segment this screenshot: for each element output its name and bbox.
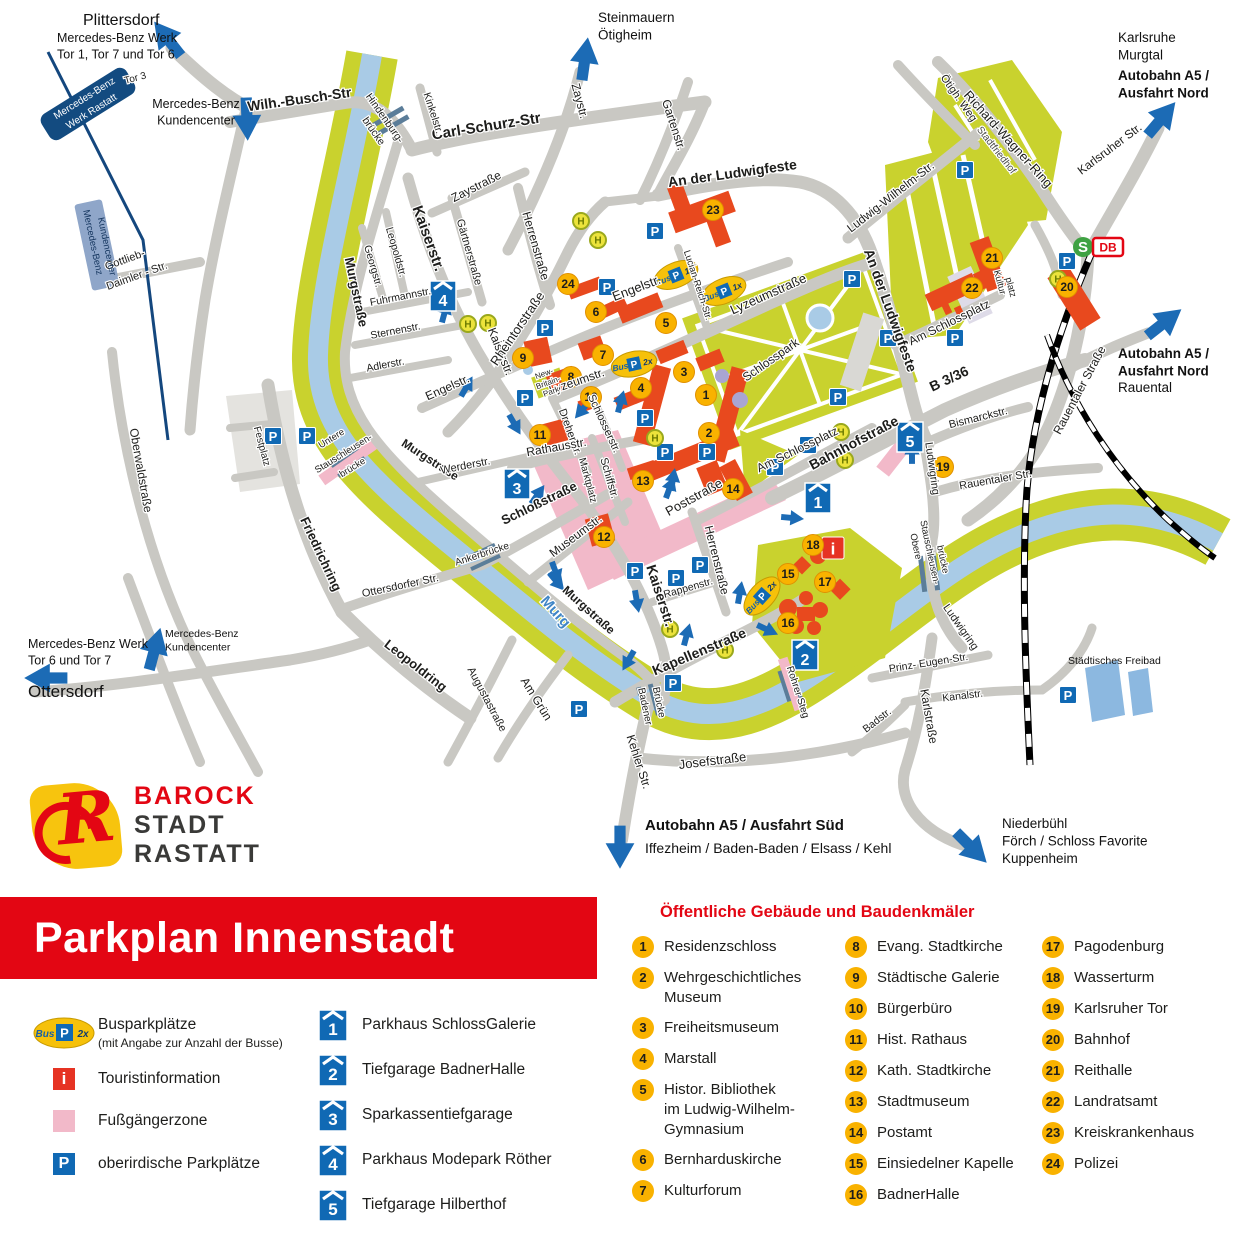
building-label: Bernharduskirche xyxy=(664,1149,782,1171)
parking-icon: P xyxy=(265,428,282,445)
street-label: Leopoldstr. xyxy=(383,226,409,279)
map-number-badge: 24 xyxy=(558,274,579,295)
svg-text:20: 20 xyxy=(1060,280,1074,294)
building-legend-item: 13 Stadtmuseum xyxy=(845,1091,1055,1113)
building-number-badge: 19 xyxy=(1042,998,1064,1020)
parkhaus-label: Parkhaus Modepark Röther xyxy=(362,1151,552,1169)
destination-label: Ottersdorf xyxy=(28,682,104,701)
building-label: Residenzschloss xyxy=(664,936,777,958)
svg-text:P: P xyxy=(848,272,857,287)
garage-icon: 4 xyxy=(318,1143,348,1177)
svg-text:P: P xyxy=(661,445,670,460)
parkhaus-legend-item: 2 Tiefgarage BadnerHalle xyxy=(318,1053,552,1087)
pedestrian-zone-swatch xyxy=(53,1110,75,1132)
parking-icon: P xyxy=(947,330,964,347)
parkhaus-legend-item: 4 Parkhaus Modepark Röther xyxy=(318,1143,552,1177)
destination-label: Plittersdorf xyxy=(83,12,160,29)
building-number-badge: 2 xyxy=(632,967,654,989)
garage-icon: 3 xyxy=(318,1098,348,1132)
map-number-badge: 23 xyxy=(703,200,724,221)
building-number-badge: 17 xyxy=(1042,936,1064,958)
svg-text:21: 21 xyxy=(985,251,999,265)
building-number-badge: 16 xyxy=(845,1184,867,1206)
parking-icon: P xyxy=(517,390,534,407)
svg-text:2: 2 xyxy=(328,1065,337,1084)
building-label: Karlsruher Tor xyxy=(1074,998,1168,1020)
parking-icon: P xyxy=(537,320,554,337)
bus-stop-icon: H xyxy=(590,232,606,248)
svg-text:Bus: Bus xyxy=(36,1029,55,1040)
building-label: Reithalle xyxy=(1074,1060,1132,1082)
svg-text:4: 4 xyxy=(638,381,645,395)
db-icon: DB xyxy=(1093,238,1123,256)
svg-text:P: P xyxy=(834,390,843,405)
building-number-badge: 5 xyxy=(632,1079,654,1101)
svg-text:P: P xyxy=(269,429,278,444)
building-number-badge: 4 xyxy=(632,1048,654,1070)
buildings-column-2: 8 Evang. Stadtkirche9 Städtische Galerie… xyxy=(845,936,1055,1215)
building-number-badge: 20 xyxy=(1042,1029,1064,1051)
svg-text:P: P xyxy=(631,564,640,579)
svg-text:14: 14 xyxy=(726,482,740,496)
building-number-badge: 24 xyxy=(1042,1153,1064,1175)
bus-stop-icon: H xyxy=(647,430,663,446)
parkhaus-label: Tiefgarage BadnerHalle xyxy=(362,1061,525,1079)
street-label: Kaiserstr. xyxy=(409,203,448,273)
building-number-badge: 1 xyxy=(632,936,654,958)
building-legend-item: 20 Bahnhof xyxy=(1042,1029,1240,1051)
building-legend-item: 21 Reithalle xyxy=(1042,1060,1240,1082)
map-number-badge: 15 xyxy=(778,564,799,585)
direction-arrow-icon xyxy=(606,826,635,869)
map-number-badge: 9 xyxy=(513,348,534,369)
map-number-badge: 7 xyxy=(593,345,614,366)
garage-icon: 1 xyxy=(805,483,831,513)
parkhaus-label: Parkhaus SchlossGalerie xyxy=(362,1016,536,1034)
building-legend-item: 22 Landratsamt xyxy=(1042,1091,1240,1113)
building-label: Pagodenburg xyxy=(1074,936,1164,958)
sbahn-icon: S xyxy=(1073,237,1093,257)
building-legend-item: 1 Residenzschloss xyxy=(632,936,842,958)
svg-text:17: 17 xyxy=(818,575,832,589)
legend-tourist-label: Touristinformation xyxy=(98,1070,220,1088)
building-legend-item: 7 Kulturforum xyxy=(632,1180,842,1202)
destination-label: Mercedes-Benz WerkTor 6 und Tor 7 xyxy=(28,637,149,667)
building-label: Bürgerbüro xyxy=(877,998,952,1020)
direction-arrow-icon xyxy=(677,621,698,647)
building-label: Kulturforum xyxy=(664,1180,742,1202)
garage-icon: 5 xyxy=(318,1188,348,1222)
building-label: Landratsamt xyxy=(1074,1091,1157,1113)
svg-text:16: 16 xyxy=(781,616,795,630)
svg-text:P: P xyxy=(541,321,550,336)
map-number-badge: 21 xyxy=(982,248,1003,269)
building-number-badge: 18 xyxy=(1042,967,1064,989)
parkhaus-label: Sparkassentiefgarage xyxy=(362,1106,513,1124)
direction-arrow-icon xyxy=(568,35,603,82)
svg-text:15: 15 xyxy=(781,567,795,581)
parking-icon: P xyxy=(830,389,847,406)
building-number-badge: 3 xyxy=(632,1017,654,1039)
parking-icon: P xyxy=(657,444,674,461)
logo-line1: BAROCK xyxy=(134,782,261,811)
svg-text:S: S xyxy=(1078,239,1088,256)
svg-text:i: i xyxy=(831,540,836,559)
svg-text:P: P xyxy=(651,224,660,239)
svg-text:3: 3 xyxy=(328,1110,337,1129)
destination-label: Mercedes-BenzKundencenter xyxy=(165,628,239,654)
building-label: Bahnhof xyxy=(1074,1029,1130,1051)
parkhaus-legend-item: 3 Sparkassentiefgarage xyxy=(318,1098,552,1132)
building-legend-item: 3 Freiheitsmuseum xyxy=(632,1017,842,1039)
svg-text:P: P xyxy=(60,1026,69,1041)
svg-text:5: 5 xyxy=(328,1200,337,1219)
title-banner: Parkplan Innenstadt xyxy=(0,897,597,979)
building-label: Wasserturm xyxy=(1074,967,1154,989)
logo-mark-icon: R xyxy=(28,779,123,872)
parking-icon: P xyxy=(571,701,588,718)
parkhaus-legend-item: 1 Parkhaus SchlossGalerie xyxy=(318,1008,552,1042)
parking-icon: P xyxy=(52,1152,76,1176)
parking-icon: P xyxy=(627,563,644,580)
street-label: Josefstraße xyxy=(678,749,747,772)
svg-text:9: 9 xyxy=(520,351,527,365)
parking-icon: P xyxy=(637,410,654,427)
svg-text:P: P xyxy=(951,331,960,346)
building-legend-item: 11 Hist. Rathaus xyxy=(845,1029,1055,1051)
building-legend-item: 10 Bürgerbüro xyxy=(845,998,1055,1020)
logo-line2: STADT xyxy=(134,811,261,840)
building-number-badge: 15 xyxy=(845,1153,867,1175)
parking-icon: P xyxy=(957,162,974,179)
destination-label: Autobahn A5 / Ausfahrt Süd xyxy=(645,817,844,834)
building-legend-item: 6 Bernharduskirche xyxy=(632,1149,842,1171)
destination-label: Städtisches Freibad xyxy=(1068,655,1161,667)
building-number-badge: 6 xyxy=(632,1149,654,1171)
destination-label: Mercedes-BenzKundencenter xyxy=(152,97,240,127)
svg-text:24: 24 xyxy=(561,277,575,291)
city-map: PPPPPPPPPPPPPPPPPPPPPPPHHHHHHHHHH12345Bu… xyxy=(0,0,1240,895)
building-legend-item: 24 Polizei xyxy=(1042,1153,1240,1175)
building-label: Städtische Galerie xyxy=(877,967,1000,989)
building-label: Kreiskrankenhaus xyxy=(1074,1122,1194,1144)
building-legend-item: 9 Städtische Galerie xyxy=(845,967,1055,989)
building-label: Evang. Stadtkirche xyxy=(877,936,1003,958)
parkplan-map-page: PPPPPPPPPPPPPPPPPPPPPPPHHHHHHHHHH12345Bu… xyxy=(0,0,1240,1240)
map-number-badge: 20 xyxy=(1057,277,1078,298)
svg-text:P: P xyxy=(1064,688,1073,703)
building-number-badge: 22 xyxy=(1042,1091,1064,1113)
building-number-badge: 14 xyxy=(845,1122,867,1144)
map-number-badge: 1 xyxy=(696,385,717,406)
svg-text:DB: DB xyxy=(1099,241,1117,255)
svg-text:2: 2 xyxy=(801,652,810,669)
building-legend-item: 14 Postamt xyxy=(845,1122,1055,1144)
map-number-badge: 18 xyxy=(803,535,824,556)
svg-text:H: H xyxy=(577,217,584,228)
svg-text:2: 2 xyxy=(706,426,713,440)
building-label: WehrgeschichtlichesMuseum xyxy=(664,967,801,1008)
street-label: Ottersdorfer Str. xyxy=(361,572,440,600)
map-number-badge: 17 xyxy=(815,572,836,593)
garage-icon: 2 xyxy=(318,1053,348,1087)
building-label: Kath. Stadtkirche xyxy=(877,1060,991,1082)
building-legend-item: 5 Histor. Bibliothekim Ludwig-Wilhelm-Gy… xyxy=(632,1079,842,1140)
building-legend-item: 2 WehrgeschichtlichesMuseum xyxy=(632,967,842,1008)
parkhaus-label: Tiefgarage Hilberthof xyxy=(362,1196,506,1214)
svg-text:H: H xyxy=(651,434,658,445)
map-number-badge: 4 xyxy=(631,378,652,399)
svg-text:P: P xyxy=(575,702,584,717)
building-legend-item: 8 Evang. Stadtkirche xyxy=(845,936,1055,958)
legend-pedestrian-zone: Fußgängerzone xyxy=(30,1110,207,1132)
svg-text:5: 5 xyxy=(663,316,670,330)
building-label: Freiheitsmuseum xyxy=(664,1017,779,1039)
svg-text:4: 4 xyxy=(439,293,448,310)
building-label: Polizei xyxy=(1074,1153,1118,1175)
svg-text:1: 1 xyxy=(814,495,823,512)
destination-label: KarlsruheMurgtal xyxy=(1118,30,1176,63)
svg-text:H: H xyxy=(464,320,471,331)
street-label: B 3/36 xyxy=(927,362,971,394)
svg-text:P: P xyxy=(1063,254,1072,269)
parking-icon: P xyxy=(299,428,316,445)
svg-text:18: 18 xyxy=(806,538,820,552)
building-legend-item: 12 Kath. Stadtkirche xyxy=(845,1060,1055,1082)
svg-text:P: P xyxy=(961,163,970,178)
svg-text:P: P xyxy=(641,411,650,426)
building-legend-item: 19 Karlsruher Tor xyxy=(1042,998,1240,1020)
building-label: Marstall xyxy=(664,1048,717,1070)
parking-icon: P xyxy=(665,675,682,692)
page-title: Parkplan Innenstadt xyxy=(0,897,597,979)
svg-text:6: 6 xyxy=(593,305,600,319)
destination-label: NiederbühlFörch / Schloss FavoriteKuppen… xyxy=(1002,816,1148,866)
buildings-column-1: 1 Residenzschloss2 WehrgeschichtlichesMu… xyxy=(632,936,842,1211)
tourist-info-icon: i xyxy=(822,537,844,559)
svg-text:3: 3 xyxy=(681,365,688,379)
building-label: BadnerHalle xyxy=(877,1184,960,1206)
parking-icon: P xyxy=(647,223,664,240)
svg-text:1: 1 xyxy=(328,1020,337,1039)
svg-text:P: P xyxy=(703,445,712,460)
svg-text:P: P xyxy=(521,391,530,406)
building-number-badge: 23 xyxy=(1042,1122,1064,1144)
legend-tourist-info: i Touristinformation xyxy=(30,1068,220,1090)
garage-icon: 2 xyxy=(792,640,818,670)
map-number-badge: 16 xyxy=(778,613,799,634)
svg-text:P: P xyxy=(303,429,312,444)
direction-arrow-icon xyxy=(780,509,804,526)
svg-text:P: P xyxy=(696,558,705,573)
legend-bus-sub: (mit Angabe zur Anzahl der Busse) xyxy=(98,1036,283,1050)
building-label: Stadtmuseum xyxy=(877,1091,970,1113)
building-label: Einsiedelner Kapelle xyxy=(877,1153,1014,1175)
destination-label: Rauental xyxy=(1118,380,1172,395)
building-number-badge: 12 xyxy=(845,1060,867,1082)
street-label: Kanalstr. xyxy=(942,688,984,705)
parkhaus-legend-item: 5 Tiefgarage Hilberthof xyxy=(318,1188,552,1222)
svg-text:P: P xyxy=(669,676,678,691)
svg-text:7: 7 xyxy=(600,348,607,362)
bus-stop-icon: H xyxy=(573,213,589,229)
building-label: Hist. Rathaus xyxy=(877,1029,967,1051)
buildings-legend-title: Öffentliche Gebäude und Baudenkmäler xyxy=(660,903,974,922)
garage-icon: 4 xyxy=(430,281,456,311)
legend-bus-label: Busparkplätze xyxy=(98,1016,196,1033)
buildings-column-3: 17 Pagodenburg18 Wasserturm19 Karlsruher… xyxy=(1042,936,1240,1184)
map-number-badge: 22 xyxy=(962,278,983,299)
destination-label: SteinmauernÖtigheim xyxy=(598,10,675,43)
building-number-badge: 7 xyxy=(632,1180,654,1202)
map-number-badge: 2 xyxy=(699,423,720,444)
svg-text:4: 4 xyxy=(328,1155,338,1174)
parking-icon: P xyxy=(844,271,861,288)
building-number-badge: 9 xyxy=(845,967,867,989)
logo-line3: RASTATT xyxy=(134,840,261,869)
map-number-badge: 6 xyxy=(586,302,607,323)
building-label: Postamt xyxy=(877,1122,932,1144)
svg-text:H: H xyxy=(594,236,601,247)
bus-parking-icon: Bus P 2x xyxy=(30,1016,98,1050)
building-label: Histor. Bibliothekim Ludwig-Wilhelm-Gymn… xyxy=(664,1079,795,1140)
garage-icon: 1 xyxy=(318,1008,348,1042)
svg-text:23: 23 xyxy=(706,203,720,217)
svg-text:22: 22 xyxy=(965,281,979,295)
building-legend-item: 16 BadnerHalle xyxy=(845,1184,1055,1206)
map-number-badge: 3 xyxy=(674,362,695,383)
parking-icon: P xyxy=(1059,253,1076,270)
parkhaus-legend: 1 Parkhaus SchlossGalerie 2 Tiefgarage B… xyxy=(318,1008,552,1233)
garage-icon: 3 xyxy=(504,469,530,499)
svg-text:2x: 2x xyxy=(76,1029,89,1040)
parking-icon: P xyxy=(692,557,709,574)
bus-stop-icon: H xyxy=(460,316,476,332)
street-label: Herrenstraße xyxy=(519,210,552,282)
map-number-badge: 12 xyxy=(594,527,615,548)
building-legend-item: 18 Wasserturm xyxy=(1042,967,1240,989)
destination-label: Autobahn A5 /Ausfahrt Nord xyxy=(1118,346,1209,379)
street-label: Rauentaler Str. xyxy=(958,468,1032,493)
legend-surface-parking: P oberirdische Parkplätze xyxy=(30,1152,260,1176)
map-number-badge: 14 xyxy=(723,479,744,500)
building-number-badge: 13 xyxy=(845,1091,867,1113)
building-number-badge: 11 xyxy=(845,1029,867,1051)
svg-text:11: 11 xyxy=(534,428,547,442)
map-number-badge: 13 xyxy=(633,471,654,492)
building-legend-item: 23 Kreiskrankenhaus xyxy=(1042,1122,1240,1144)
building-number-badge: 21 xyxy=(1042,1060,1064,1082)
building-number-badge: 10 xyxy=(845,998,867,1020)
street-label: Gärtnerstraße xyxy=(454,218,484,287)
svg-text:1: 1 xyxy=(703,388,710,402)
barock-stadt-rastatt-logo: R BAROCK STADT RASTATT xyxy=(32,782,261,869)
building-legend-item: 15 Einsiedelner Kapelle xyxy=(845,1153,1055,1175)
svg-text:13: 13 xyxy=(636,474,650,488)
tourist-info-icon: i xyxy=(53,1068,75,1090)
map-number-badge: 5 xyxy=(656,313,677,334)
parking-icon: P xyxy=(1060,687,1077,704)
svg-text:5: 5 xyxy=(906,434,915,451)
legend-bus-parking: Bus P 2x Busparkplätze (mit Angabe zur A… xyxy=(30,1016,283,1050)
legend-parking-label: oberirdische Parkplätze xyxy=(98,1155,260,1173)
building-number-badge: 8 xyxy=(845,936,867,958)
destination-label: Iffezheim / Baden-Baden / Elsass / Kehl xyxy=(645,840,891,856)
direction-arrow-icon xyxy=(1138,298,1190,347)
svg-text:3: 3 xyxy=(513,481,522,498)
building-legend-item: 4 Marstall xyxy=(632,1048,842,1070)
svg-text:12: 12 xyxy=(597,530,611,544)
legend-pedestrian-label: Fußgängerzone xyxy=(98,1112,207,1130)
parking-icon: P xyxy=(699,444,716,461)
destination-label: Autobahn A5 /Ausfahrt Nord xyxy=(1118,68,1209,101)
building-legend-item: 17 Pagodenburg xyxy=(1042,936,1240,958)
